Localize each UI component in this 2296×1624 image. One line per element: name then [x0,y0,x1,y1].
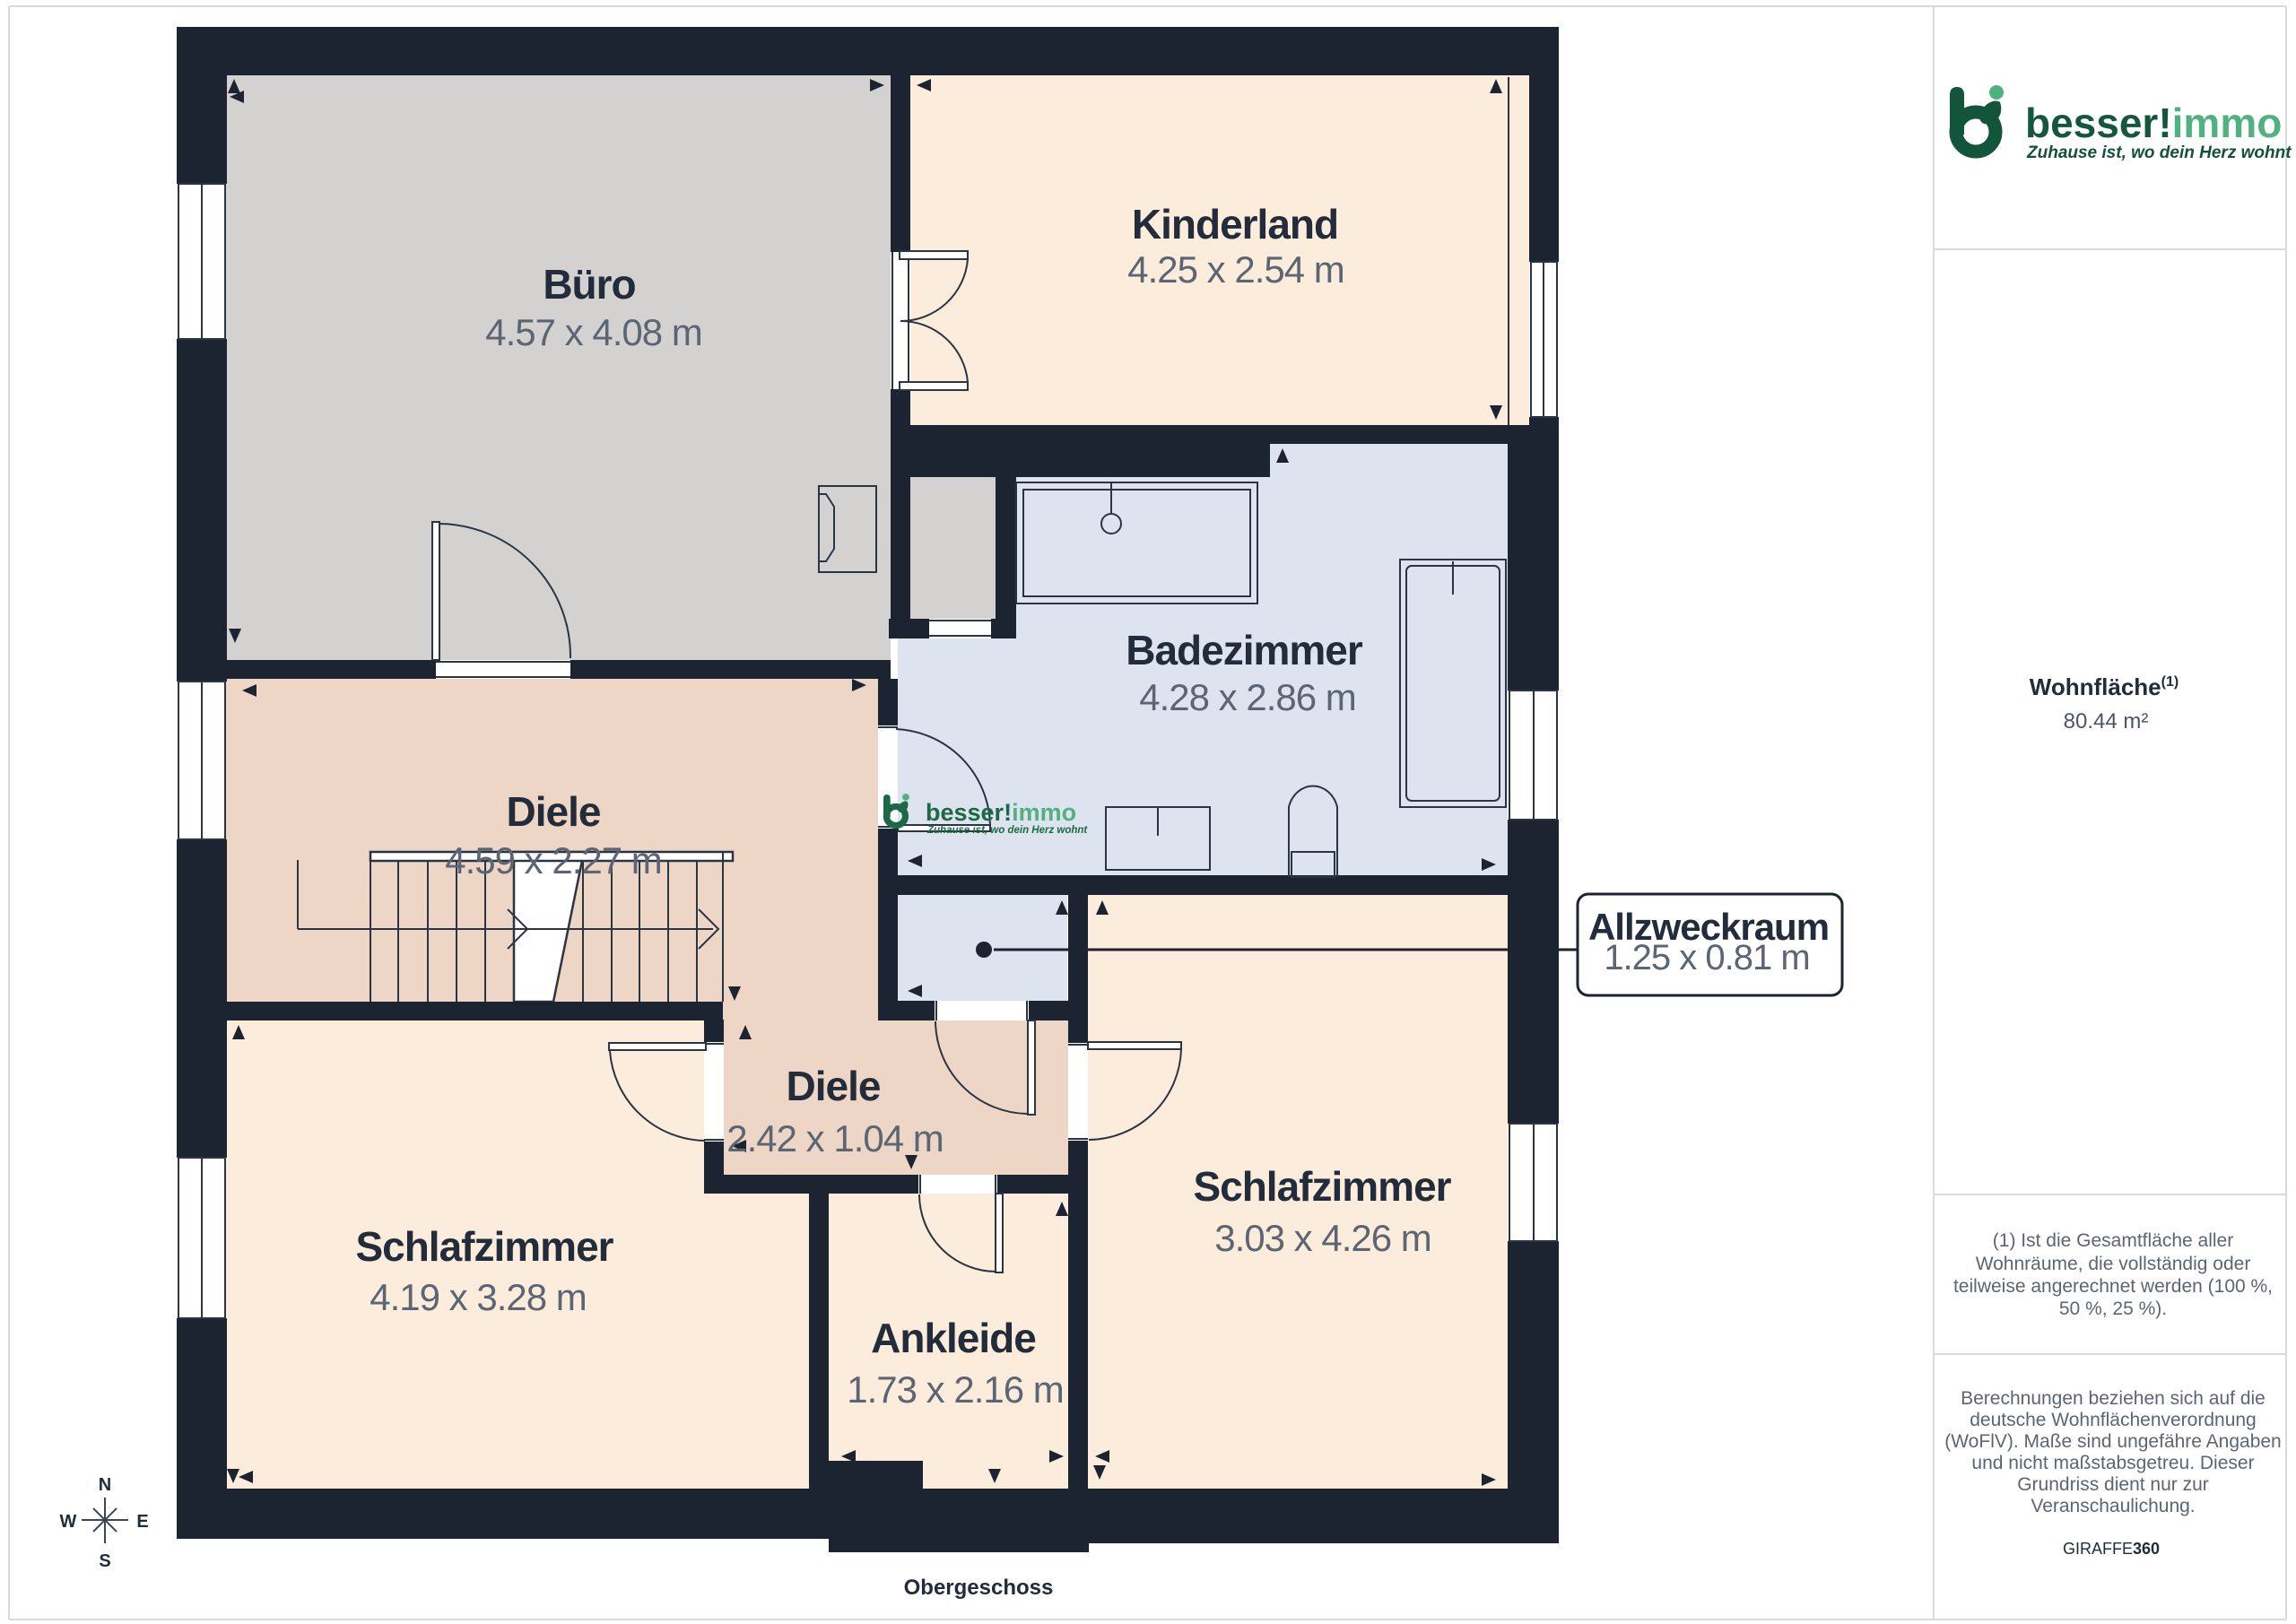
svg-text:1.25 x 0.81 m: 1.25 x 0.81 m [1604,938,1809,977]
svg-text:2.42 x 1.04 m: 2.42 x 1.04 m [726,1117,943,1159]
svg-text:4.19 x 3.28 m: 4.19 x 3.28 m [370,1276,586,1318]
svg-text:Zuhause ist, wo dein Herz wohn: Zuhause ist, wo dein Herz wohnt [2026,143,2292,162]
svg-text:Diele: Diele [787,1063,881,1109]
svg-text:Badezimmer: Badezimmer [1126,627,1363,673]
svg-text:3.03 x 4.26 m: 3.03 x 4.26 m [1214,1217,1431,1259]
svg-text:1.73 x 2.16 m: 1.73 x 2.16 m [847,1368,1063,1411]
svg-text:80.44 m²: 80.44 m² [2064,709,2149,734]
svg-text:und nicht maßstabsgetreu. Dies: und nicht maßstabsgetreu. Dieser [1971,1453,2254,1473]
svg-text:GIRAFFE360: GIRAFFE360 [2063,1540,2160,1558]
svg-text:4.25 x 2.54 m: 4.25 x 2.54 m [1127,248,1344,291]
svg-text:S: S [99,1551,110,1571]
svg-text:(WoFlV). Maße sind ungefähre A: (WoFlV). Maße sind ungefähre Angaben [1944,1431,2282,1452]
svg-text:Wohnfläche(1): Wohnfläche(1) [2030,673,2179,700]
svg-text:Ankleide: Ankleide [871,1315,1036,1361]
svg-text:Zuhause ist, wo dein Herz wohn: Zuhause ist, wo dein Herz wohnt [926,825,1088,836]
svg-text:Büro: Büro [543,261,635,308]
svg-text:teilweise angerechnet werden (: teilweise angerechnet werden (100 %, [1953,1276,2273,1297]
svg-text:W: W [60,1512,77,1532]
svg-text:besser!immo: besser!immo [2025,100,2282,146]
svg-text:4.28 x 2.86 m: 4.28 x 2.86 m [1139,676,1355,718]
svg-text:4.59 x 2.27 m: 4.59 x 2.27 m [445,839,661,881]
svg-text:Veranschaulichung.: Veranschaulichung. [2031,1496,2195,1516]
svg-text:(1) Ist die Gesamtfläche aller: (1) Ist die Gesamtfläche aller [1993,1230,2233,1251]
svg-text:Berechnungen beziehen sich auf: Berechnungen beziehen sich auf die [1961,1388,2266,1409]
svg-text:E: E [136,1512,148,1532]
svg-text:4.57 x 4.08 m: 4.57 x 4.08 m [485,311,701,353]
svg-text:Wohnräume, die vollständig ode: Wohnräume, die vollständig oder [1976,1254,2251,1274]
svg-text:Grundriss dient nur zur: Grundriss dient nur zur [2017,1474,2209,1495]
svg-text:Schlafzimmer: Schlafzimmer [1193,1163,1451,1210]
svg-text:Obergeschoss: Obergeschoss [904,1576,1054,1600]
svg-text:besser!immo: besser!immo [926,799,1076,826]
svg-text:N: N [99,1475,111,1495]
svg-text:Schlafzimmer: Schlafzimmer [355,1223,613,1270]
svg-text:50 %, 25 %).: 50 %, 25 %). [2059,1298,2167,1319]
svg-text:deutsche Wohnflächenverordnung: deutsche Wohnflächenverordnung [1970,1410,2257,1430]
svg-text:Kinderland: Kinderland [1132,201,1338,248]
svg-text:Diele: Diele [507,788,601,835]
